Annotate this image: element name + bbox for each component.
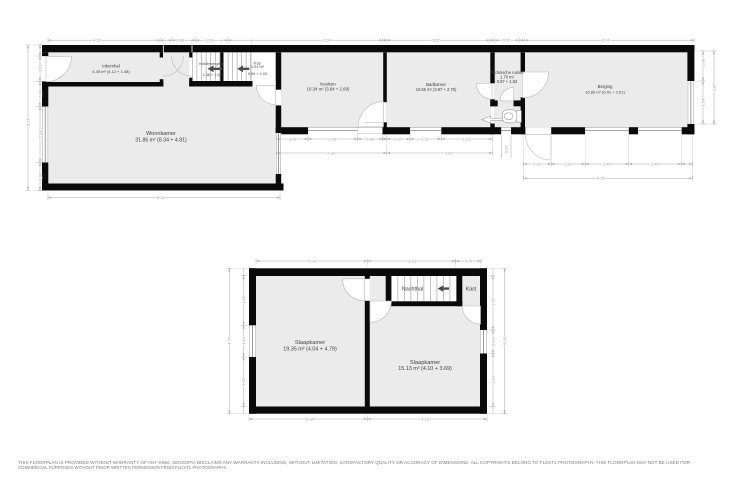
svg-text:31.86 m² (8.34 + 4.81): 31.86 m² (8.34 + 4.81) (135, 137, 187, 143)
svg-text:16.89 m² (6.91 + 2.61): 16.89 m² (6.91 + 2.61) (585, 89, 625, 94)
svg-text:0.87: 0.87 (394, 136, 403, 141)
svg-text:1.95: 1.95 (490, 297, 495, 306)
svg-text:1.20: 1.20 (564, 161, 573, 166)
svg-text:COMMERCIAL PURPOSES WITHOUT PR: COMMERCIAL PURPOSES WITHOUT PRIOR WRITTE… (18, 465, 227, 470)
svg-text:1.44: 1.44 (603, 161, 612, 166)
svg-text:2.94: 2.94 (323, 38, 332, 43)
svg-text:19.35 m² (4.04 + 4.79): 19.35 m² (4.04 + 4.79) (283, 347, 337, 353)
svg-text:4.10: 4.10 (421, 416, 430, 421)
svg-text:1.80: 1.80 (241, 295, 246, 304)
svg-text:6.91: 6.91 (597, 176, 606, 181)
svg-text:0.97: 0.97 (503, 38, 512, 43)
svg-text:1.54: 1.54 (700, 98, 705, 107)
svg-text:0.89: 0.89 (37, 89, 42, 98)
svg-text:0.88: 0.88 (366, 136, 375, 141)
svg-text:4.04: 4.04 (306, 416, 315, 421)
svg-text:10.55 m² (3.87 + 2.75): 10.55 m² (3.87 + 2.75) (416, 87, 457, 92)
svg-text:0.70: 0.70 (465, 258, 474, 263)
svg-text:1.08: 1.08 (700, 58, 705, 67)
svg-text:5.05: 5.05 (502, 336, 507, 345)
svg-text:3.33: 3.33 (408, 258, 417, 263)
svg-text:0.84: 0.84 (490, 337, 495, 346)
svg-text:2.87: 2.87 (711, 83, 716, 92)
svg-text:2.94: 2.94 (327, 150, 336, 155)
svg-text:1.00: 1.00 (37, 172, 42, 181)
svg-text:0.88: 0.88 (176, 38, 185, 43)
svg-text:0.97: 0.97 (503, 144, 508, 153)
svg-text:Kast: Kast (466, 286, 477, 292)
svg-text:3.67: 3.67 (432, 38, 441, 43)
svg-text:1.38 + 1.03: 1.38 + 1.03 (202, 73, 221, 77)
svg-text:1.02: 1.02 (462, 136, 471, 141)
svg-text:Kelderberging: Kelderberging (199, 62, 223, 66)
svg-text:1.15: 1.15 (241, 336, 246, 345)
svg-text:Slaapkamer: Slaapkamer (295, 340, 325, 346)
svg-text:15.13 m² (4.10 + 3.69): 15.13 m² (4.10 + 3.69) (398, 366, 452, 372)
svg-text:0.91: 0.91 (37, 64, 42, 73)
svg-text:8.34: 8.34 (157, 195, 166, 200)
svg-text:2.01: 2.01 (37, 130, 42, 139)
svg-text:1.79: 1.79 (241, 377, 246, 386)
svg-text:10.34 m² (3.84 + 2.69): 10.34 m² (3.84 + 2.69) (307, 87, 350, 92)
svg-text:1.10: 1.10 (422, 136, 431, 141)
svg-text:1.93: 1.93 (490, 375, 495, 384)
svg-text:1.78: 1.78 (328, 136, 337, 141)
svg-text:0.97 + 1.83: 0.97 + 1.83 (497, 79, 518, 84)
svg-text:1.09: 1.09 (288, 136, 297, 141)
svg-text:6.91: 6.91 (602, 38, 611, 43)
svg-text:1.51 m²: 1.51 m² (251, 65, 265, 69)
svg-text:0.93: 0.93 (533, 161, 542, 166)
svg-text:4.12: 4.12 (93, 38, 102, 43)
svg-text:1.44: 1.44 (651, 161, 660, 166)
svg-text:4.04: 4.04 (308, 258, 317, 263)
svg-text:3.87: 3.87 (445, 150, 454, 155)
svg-text:5.26: 5.26 (25, 117, 30, 126)
svg-text:4.79: 4.79 (227, 336, 232, 345)
svg-text:4.45 m² (4.12 + 1.08): 4.45 m² (4.12 + 1.08) (92, 69, 130, 74)
svg-text:1.03: 1.03 (205, 38, 214, 43)
svg-text:Nachthal: Nachthal (402, 286, 423, 292)
svg-text:Woonkamer: Woonkamer (146, 131, 176, 137)
svg-text:Keuken: Keuken (320, 81, 336, 86)
svg-text:0.59 + 1.03: 0.59 + 1.03 (248, 72, 267, 76)
